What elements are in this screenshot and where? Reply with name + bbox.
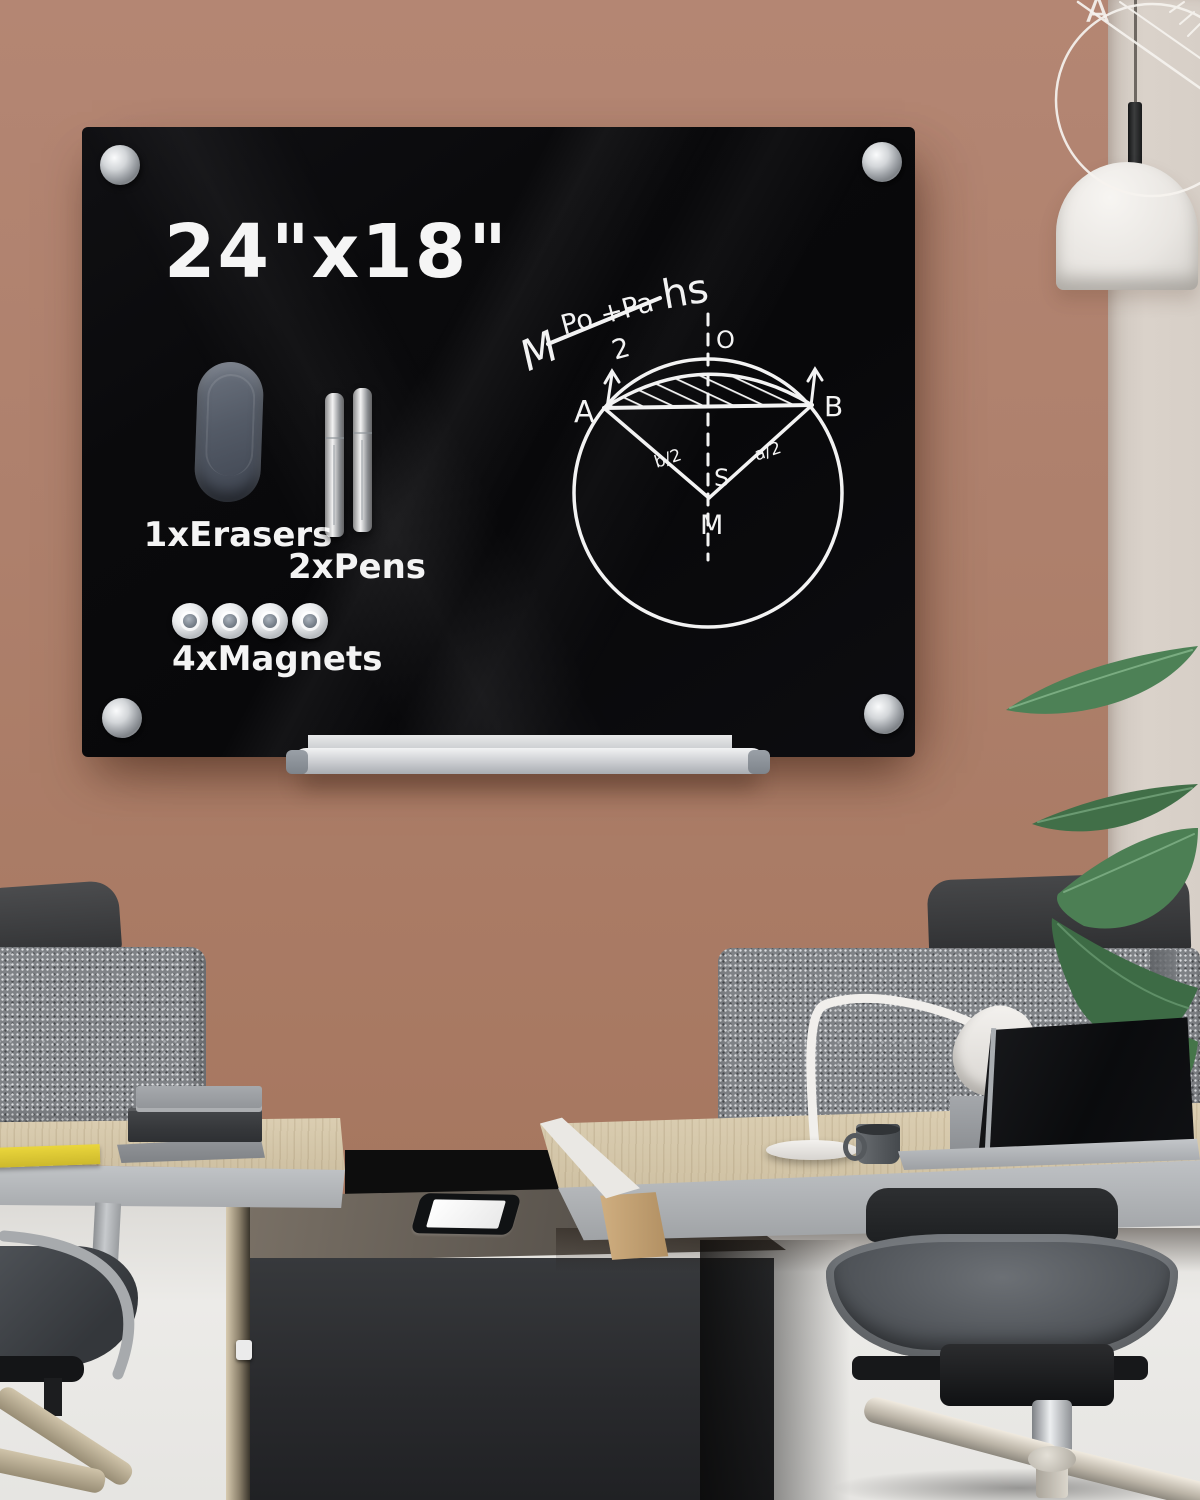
- standoff-mount-bottom-left: [102, 698, 142, 738]
- marker-tray-end-cap: [286, 750, 308, 774]
- eraser: [194, 361, 265, 503]
- diagram-point-a: A: [574, 395, 595, 430]
- storage-cabinet-front: [244, 1258, 774, 1500]
- glass-dry-erase-board: 24"x18" 1xErasers 2xPens 4xMagnets: [82, 127, 915, 757]
- office-scene: A 24"x18" 1xErasers 2xPens 4xMagnets: [0, 0, 1200, 1500]
- magnet: [212, 603, 248, 639]
- dark-book: [128, 1108, 262, 1142]
- magnet: [252, 603, 288, 639]
- left-desk-edge: [0, 1162, 346, 1212]
- chalk-geometry-diagram: A B O S M b/2 a/2 M Po +Pa 2 hs: [520, 262, 970, 692]
- marker-pen: [325, 393, 344, 537]
- grommet-insert: [426, 1199, 506, 1228]
- formula-numerator: Po +Pa: [558, 287, 657, 341]
- board-size-label: 24"x18": [164, 209, 509, 295]
- coffee-mug: [856, 1124, 900, 1164]
- gray-book: [136, 1086, 262, 1112]
- marker-tray: [293, 748, 765, 774]
- wall-line-art: A: [1002, 0, 1200, 280]
- laptop-screen: [976, 1016, 1194, 1156]
- office-chair-base-hub: [1028, 1446, 1076, 1472]
- wall-art-letter: A: [1086, 0, 1109, 31]
- marker-tray-end-cap: [748, 750, 770, 774]
- desk-cable-grommet: [410, 1193, 521, 1235]
- diagram-point-m: M: [700, 510, 723, 541]
- standoff-mount-bottom-right: [864, 694, 904, 734]
- magnets-count-label: 4xMagnets: [172, 639, 332, 679]
- pens-count-label: 2xPens: [288, 547, 420, 587]
- diagram-fraction-right: a/2: [752, 438, 784, 465]
- magnet: [172, 603, 208, 639]
- formula-prefix: M: [520, 321, 565, 381]
- office-chair-armrest-left: [0, 1356, 84, 1382]
- standoff-mount-top-right: [862, 142, 902, 182]
- formula-denominator: 2: [609, 332, 634, 366]
- standoff-mount-top-left: [100, 145, 140, 185]
- marker-pen: [353, 388, 372, 532]
- diagram-point-o: O: [716, 326, 735, 354]
- formula-suffix: hs: [658, 265, 711, 318]
- office-chair-seat: [826, 1234, 1178, 1358]
- diagram-fraction-left: b/2: [652, 445, 684, 472]
- office-chair-mechanism: [940, 1344, 1114, 1406]
- yellow-notebook: [0, 1144, 100, 1168]
- magnet: [292, 603, 328, 639]
- diagram-point-b: B: [824, 390, 843, 423]
- diagram-point-s: S: [714, 464, 729, 492]
- cabinet-knob: [236, 1340, 252, 1360]
